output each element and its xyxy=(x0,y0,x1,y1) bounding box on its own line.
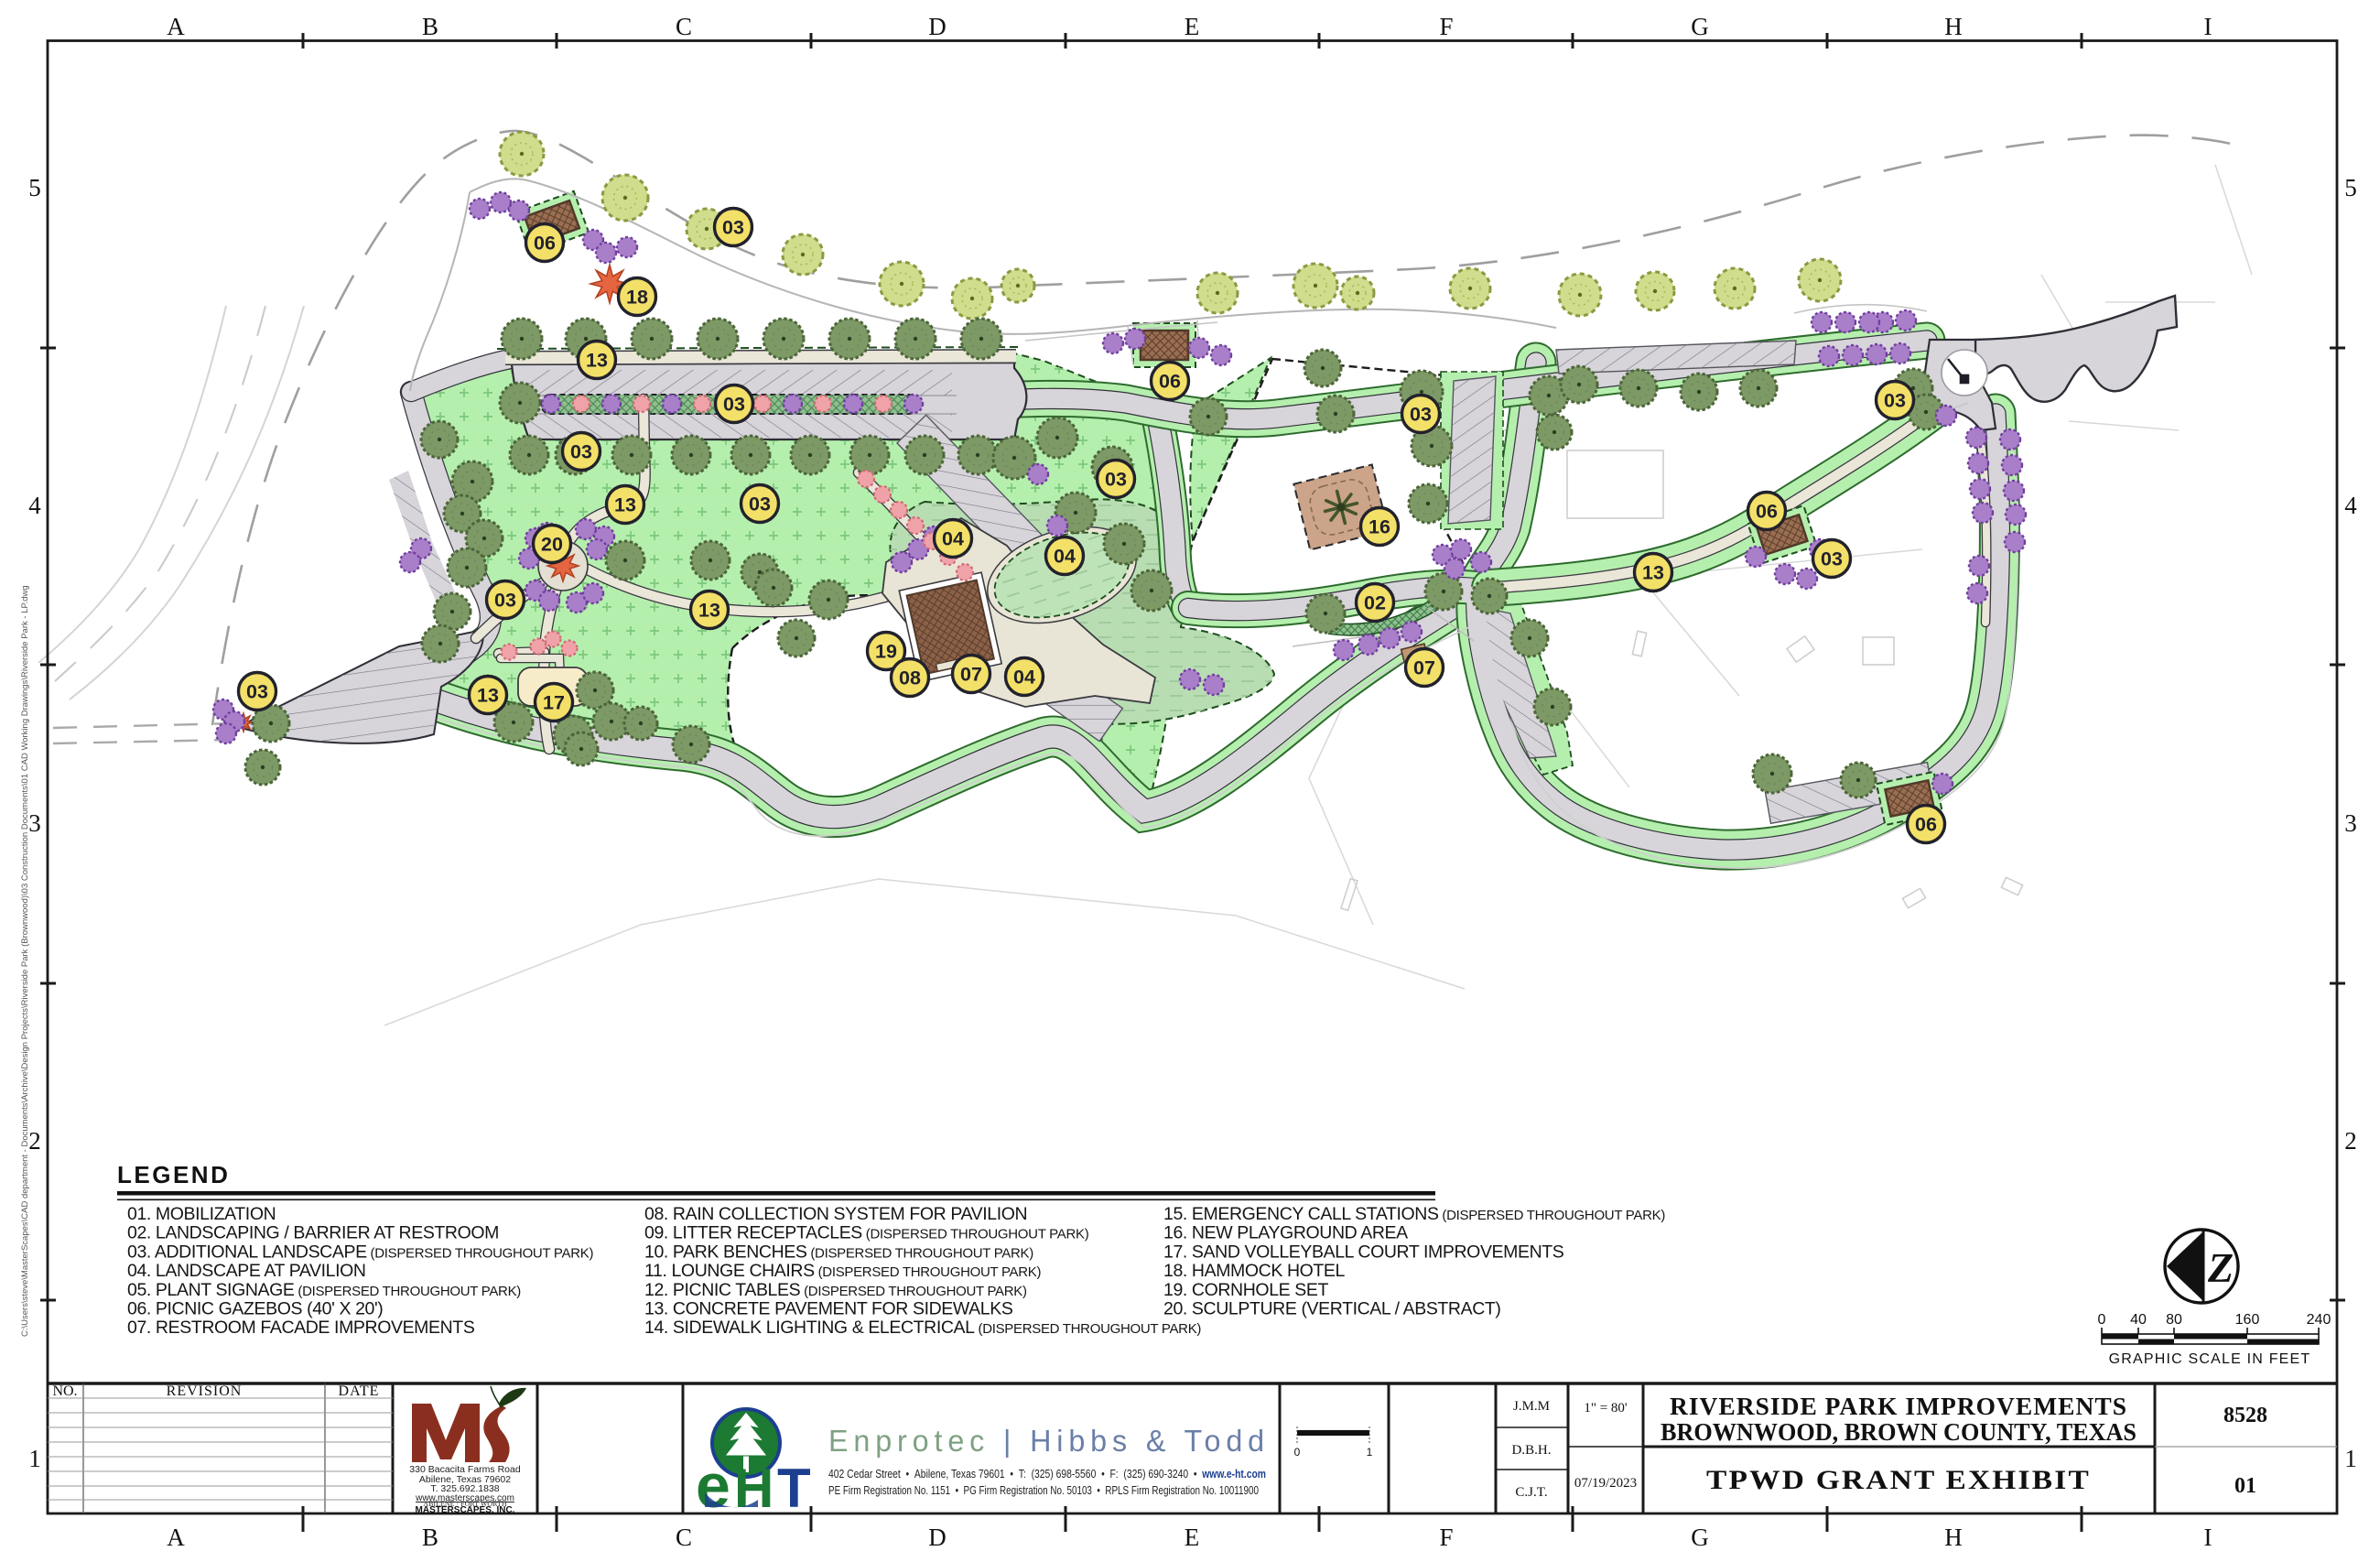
svg-text:D: D xyxy=(928,1524,947,1551)
svg-text:GRAPHIC SCALE IN FEET: GRAPHIC SCALE IN FEET xyxy=(2109,1351,2311,1367)
svg-text:03: 03 xyxy=(494,590,516,612)
svg-text:11. LOUNGE CHAIRS (DISPERSED T: 11. LOUNGE CHAIRS (DISPERSED THROUGHOUT … xyxy=(644,1261,1042,1281)
svg-text:02: 02 xyxy=(1364,592,1386,614)
svg-text:05. PLANT SIGNAGE (DISPERSED T: 05. PLANT SIGNAGE (DISPERSED THROUGHOUT … xyxy=(127,1280,521,1300)
svg-text:14. SIDEWALK LIGHTING & ELECTR: 14. SIDEWALK LIGHTING & ELECTRICAL (DISP… xyxy=(644,1318,1201,1338)
svg-text:06: 06 xyxy=(534,233,556,255)
svg-text:2: 2 xyxy=(28,1127,41,1155)
svg-text:MASTERSCAPES, INC.: MASTERSCAPES, INC. xyxy=(416,1505,515,1515)
svg-text:Enprotec | Hibbs & Todd: Enprotec | Hibbs & Todd xyxy=(828,1424,1270,1458)
svg-text:A: A xyxy=(167,13,185,40)
svg-text:03: 03 xyxy=(749,494,771,515)
svg-text:C:\Users\steve\MasterScapes\CA: C:\Users\steve\MasterScapes\CAD departme… xyxy=(20,585,30,1337)
svg-text:1: 1 xyxy=(2344,1445,2357,1472)
svg-text:BROWNWOOD, BROWN COUNTY, TEXAS: BROWNWOOD, BROWN COUNTY, TEXAS xyxy=(1661,1418,2137,1446)
svg-text:1: 1 xyxy=(28,1445,41,1472)
svg-text:402 Cedar Street • Abilene,: 402 Cedar Street • Abilene, Texas 79601 … xyxy=(828,1468,1266,1481)
svg-text:07: 07 xyxy=(1413,657,1435,679)
svg-text:20: 20 xyxy=(541,534,563,556)
svg-text:13. CONCRETE PAVEMENT FOR SIDE: 13. CONCRETE PAVEMENT FOR SIDEWALKS xyxy=(644,1299,1013,1319)
svg-text:04. LANDSCAPE AT PAVILION: 04. LANDSCAPE AT PAVILION xyxy=(127,1261,366,1281)
svg-text:03: 03 xyxy=(1884,390,1906,412)
svg-text:08. RAIN COLLECTION SYSTEM FOR: 08. RAIN COLLECTION SYSTEM FOR PAVILION xyxy=(644,1204,1027,1224)
svg-text:A: A xyxy=(167,1524,185,1551)
svg-text:03: 03 xyxy=(1821,548,1843,570)
svg-text:13: 13 xyxy=(614,494,636,516)
svg-text:E: E xyxy=(1185,1524,1200,1551)
svg-text:12. PICNIC TABLES (DISPERSED T: 12. PICNIC TABLES (DISPERSED THROUGHOUT … xyxy=(644,1280,1027,1300)
svg-text:3: 3 xyxy=(28,809,41,837)
svg-text:DATE: DATE xyxy=(339,1383,380,1399)
svg-text:H: H xyxy=(734,1458,773,1519)
svg-text:13: 13 xyxy=(698,600,720,622)
svg-text:160: 160 xyxy=(2235,1312,2260,1328)
svg-text:03: 03 xyxy=(1105,469,1127,491)
svg-text:D: D xyxy=(928,13,947,40)
svg-text:15. EMERGENCY CALL STATIONS (D: 15. EMERGENCY CALL STATIONS (DISPERSED T… xyxy=(1163,1204,1665,1224)
svg-text:19. CORNHOLE SET: 19. CORNHOLE SET xyxy=(1163,1280,1328,1300)
svg-text:07. RESTROOM FACADE IMPROVEMEN: 07. RESTROOM FACADE IMPROVEMENTS xyxy=(127,1318,475,1338)
svg-text:T: T xyxy=(777,1458,811,1519)
svg-text:C.J.T.: C.J.T. xyxy=(1515,1485,1547,1500)
svg-text:16: 16 xyxy=(1368,516,1390,538)
svg-text:1" = 80': 1" = 80' xyxy=(1584,1401,1628,1416)
svg-text:NO.: NO. xyxy=(52,1383,77,1399)
svg-text:B: B xyxy=(422,1524,438,1551)
svg-text:80: 80 xyxy=(2166,1312,2182,1328)
svg-text:G: G xyxy=(1691,13,1709,40)
svg-text:G: G xyxy=(1691,1524,1709,1551)
svg-text:Z: Z xyxy=(2207,1244,2234,1291)
svg-text:07/19/2023: 07/19/2023 xyxy=(1574,1476,1637,1491)
svg-text:06. PICNIC GAZEBOS (40' X 20'): 06. PICNIC GAZEBOS (40' X 20') xyxy=(127,1299,383,1319)
svg-text:LEGEND: LEGEND xyxy=(117,1161,230,1188)
svg-text:1: 1 xyxy=(1367,1446,1373,1459)
svg-text:0: 0 xyxy=(2098,1312,2106,1328)
svg-text:03: 03 xyxy=(246,681,268,703)
svg-text:03: 03 xyxy=(570,441,592,463)
svg-text:01: 01 xyxy=(2234,1474,2256,1498)
svg-text:08: 08 xyxy=(899,667,921,689)
svg-text:C: C xyxy=(676,13,692,40)
svg-text:F: F xyxy=(1439,13,1453,40)
svg-text:18. HAMMOCK HOTEL: 18. HAMMOCK HOTEL xyxy=(1163,1261,1346,1281)
svg-text:17. SAND VOLLEYBALL COURT IMPR: 17. SAND VOLLEYBALL COURT IMPROVEMENTS xyxy=(1163,1242,1564,1262)
svg-text:09. LITTER RECEPTACLES (DISPER: 09. LITTER RECEPTACLES (DISPERSED THROUG… xyxy=(644,1223,1089,1243)
svg-text:4: 4 xyxy=(2344,492,2357,519)
svg-text:PE Firm Registration No. 1151: PE Firm Registration No. 1151 • PG Firm … xyxy=(828,1484,1259,1497)
svg-text:04: 04 xyxy=(1054,546,1076,568)
svg-text:40: 40 xyxy=(2130,1312,2147,1328)
svg-text:F: F xyxy=(1439,1524,1453,1551)
svg-text:3: 3 xyxy=(2344,809,2357,837)
svg-text:e: e xyxy=(696,1451,730,1521)
svg-text:03: 03 xyxy=(1410,404,1432,426)
svg-text:07: 07 xyxy=(960,664,982,686)
svg-text:8528: 8528 xyxy=(2223,1404,2267,1427)
svg-text:0: 0 xyxy=(1294,1446,1301,1459)
svg-text:E: E xyxy=(1185,13,1200,40)
svg-text:H: H xyxy=(1944,1524,1963,1551)
svg-text:5: 5 xyxy=(28,174,41,201)
svg-text:5: 5 xyxy=(2344,174,2357,201)
svg-text:18: 18 xyxy=(626,287,648,309)
svg-text:17: 17 xyxy=(543,692,565,714)
svg-text:04: 04 xyxy=(942,528,964,550)
svg-text:B: B xyxy=(422,13,438,40)
svg-text:4: 4 xyxy=(28,492,41,519)
svg-text:06: 06 xyxy=(1915,814,1937,836)
svg-text:TPWD GRANT EXHIBIT: TPWD GRANT EXHIBIT xyxy=(1706,1465,2091,1495)
svg-text:13: 13 xyxy=(477,685,499,707)
svg-text:J.M.M: J.M.M xyxy=(1513,1399,1550,1414)
svg-text:03: 03 xyxy=(723,394,745,416)
svg-text:RIVERSIDE PARK IMPROVEMENTS: RIVERSIDE PARK IMPROVEMENTS xyxy=(1670,1393,2127,1420)
svg-text:2: 2 xyxy=(2344,1127,2357,1155)
svg-text:13: 13 xyxy=(586,350,608,372)
svg-text:240: 240 xyxy=(2307,1312,2331,1328)
svg-text:I: I xyxy=(2204,1524,2212,1551)
svg-text:02. LANDSCAPING / BARRIER AT R: 02. LANDSCAPING / BARRIER AT RESTROOM xyxy=(127,1223,499,1243)
svg-text:16. NEW PLAYGROUND AREA: 16. NEW PLAYGROUND AREA xyxy=(1163,1223,1408,1243)
svg-text:REVISION: REVISION xyxy=(167,1383,243,1399)
svg-text:D.B.H.: D.B.H. xyxy=(1512,1443,1552,1458)
svg-text:01. MOBILIZATION: 01. MOBILIZATION xyxy=(127,1204,276,1224)
svg-text:03: 03 xyxy=(722,217,744,239)
svg-text:06: 06 xyxy=(1756,501,1778,523)
svg-text:C: C xyxy=(676,1524,692,1551)
svg-text:13: 13 xyxy=(1642,562,1664,584)
svg-text:19: 19 xyxy=(875,641,897,663)
svg-text:04: 04 xyxy=(1013,667,1035,689)
svg-text:10. PARK BENCHES (DISPERSED TH: 10. PARK BENCHES (DISPERSED THROUGHOUT P… xyxy=(644,1242,1033,1262)
svg-text:20. SCULPTURE (VERTICAL / ABST: 20. SCULPTURE (VERTICAL / ABSTRACT) xyxy=(1163,1299,1501,1319)
svg-text:03. ADDITIONAL LANDSCAPE (DISP: 03. ADDITIONAL LANDSCAPE (DISPERSED THRO… xyxy=(127,1242,593,1262)
svg-text:I: I xyxy=(2204,13,2212,40)
svg-text:H: H xyxy=(1944,13,1963,40)
svg-text:06: 06 xyxy=(1159,371,1181,393)
